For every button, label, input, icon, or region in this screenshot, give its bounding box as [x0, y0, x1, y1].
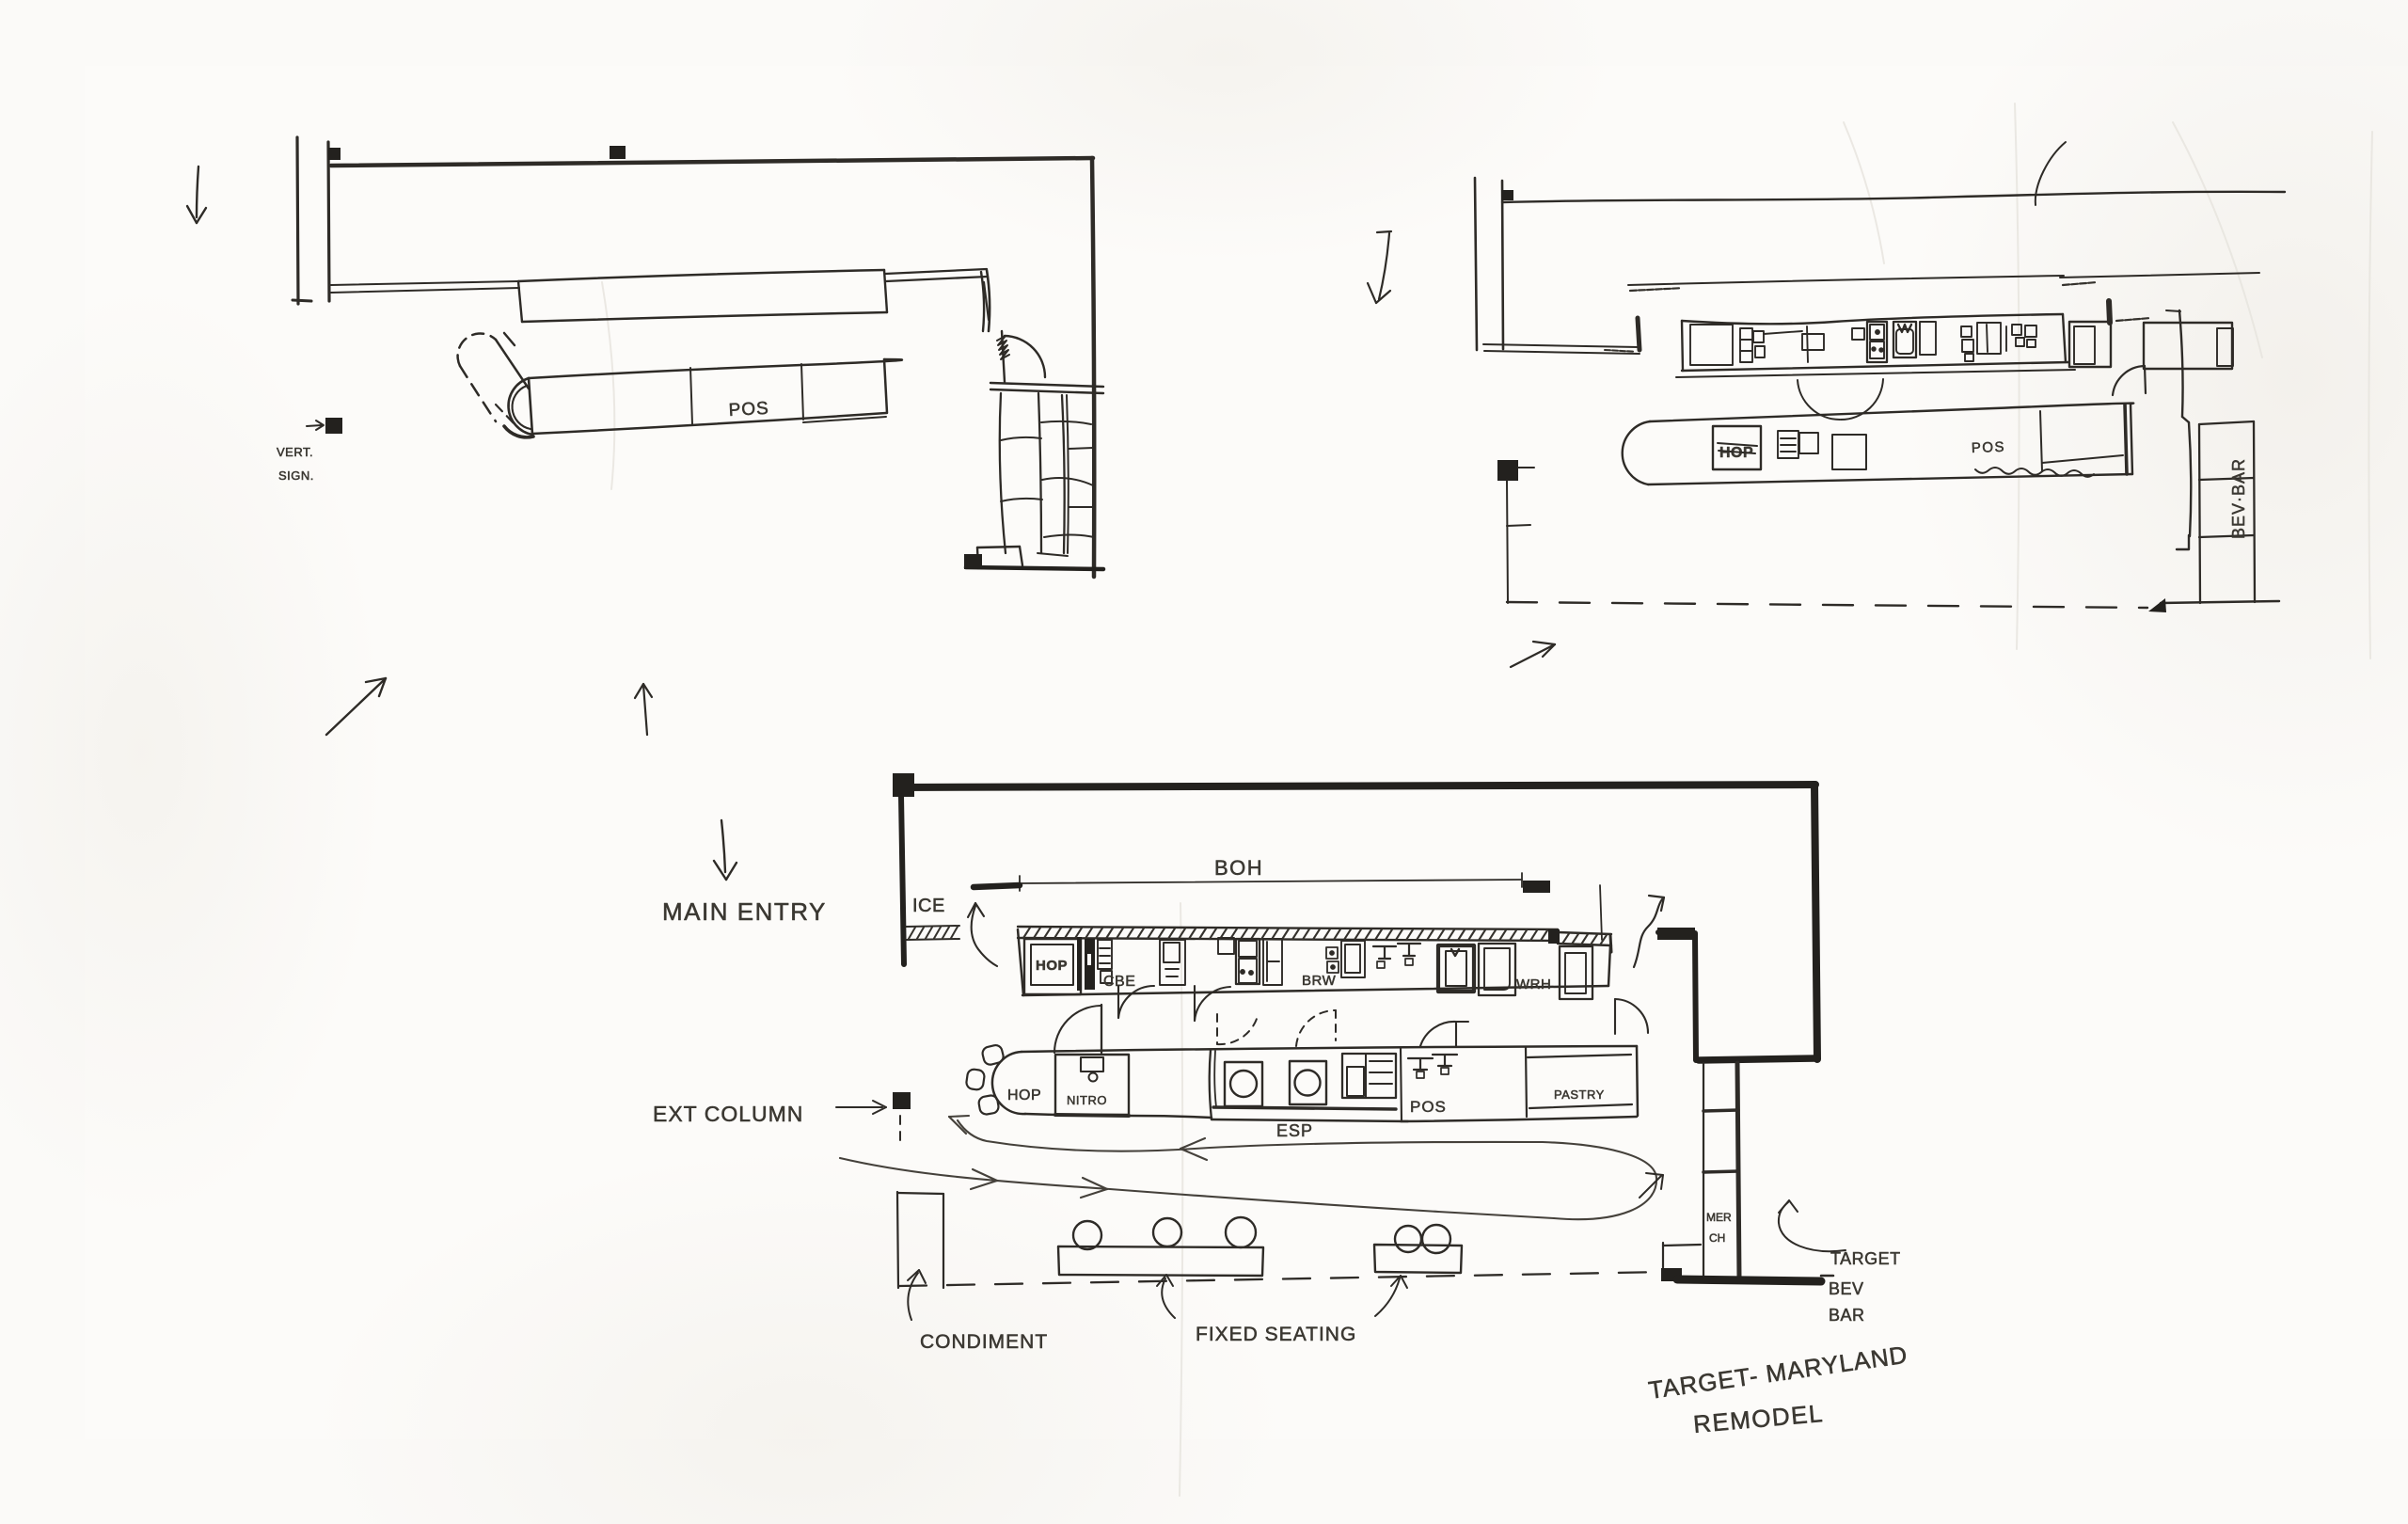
svg-text:BOH: BOH: [1214, 856, 1263, 880]
svg-text:HOP: HOP: [1007, 1087, 1041, 1103]
svg-text:BAR: BAR: [1829, 1306, 1865, 1325]
svg-text:ICE: ICE: [912, 896, 945, 916]
svg-text:POS: POS: [1410, 1098, 1447, 1116]
svg-text:WRH: WRH: [1516, 976, 1551, 992]
svg-text:BEV: BEV: [1829, 1279, 1864, 1298]
svg-text:EXT COLUMN: EXT COLUMN: [653, 1102, 803, 1126]
svg-text:SIGN.: SIGN.: [278, 468, 314, 483]
svg-text:ESP: ESP: [1276, 1121, 1313, 1140]
svg-text:MAIN ENTRY: MAIN ENTRY: [662, 897, 827, 926]
svg-text:BRW: BRW: [1302, 973, 1337, 989]
svg-text:FIXED SEATING: FIXED SEATING: [1196, 1324, 1356, 1345]
svg-text:BEV·BAR: BEV·BAR: [2229, 458, 2248, 539]
svg-text:CBE: CBE: [1103, 974, 1135, 990]
svg-text:TARGET: TARGET: [1830, 1249, 1901, 1268]
svg-text:HOP: HOP: [1036, 958, 1068, 974]
svg-text:POS: POS: [728, 399, 769, 421]
svg-text:VERT.: VERT.: [277, 445, 313, 459]
svg-text:CH: CH: [1709, 1231, 1725, 1245]
svg-text:POS: POS: [1972, 439, 2006, 456]
svg-text:MER: MER: [1706, 1211, 1732, 1224]
svg-text:PASTRY: PASTRY: [1554, 1087, 1605, 1102]
svg-text:NITRO: NITRO: [1067, 1093, 1107, 1107]
svg-text:CONDIMENT: CONDIMENT: [920, 1331, 1048, 1353]
